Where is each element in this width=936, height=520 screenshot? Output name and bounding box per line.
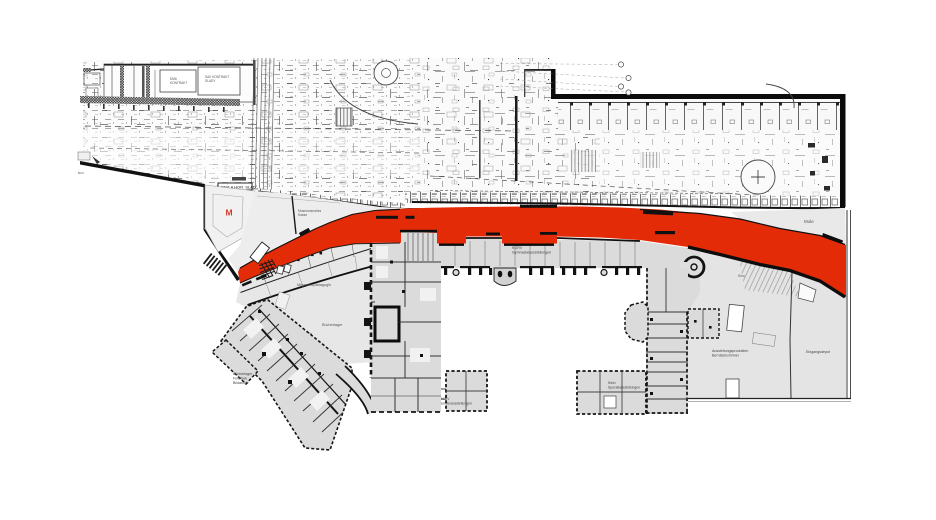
svg-text:Bücherlager: Bücherlager bbox=[233, 372, 253, 376]
svg-text:Gymnasialausstellungen: Gymnasialausstellungen bbox=[512, 251, 551, 255]
svg-text:KONTRAKT: KONTRAKT bbox=[170, 81, 187, 85]
svg-text:Ausstellungsprodukten: Ausstellungsprodukten bbox=[712, 349, 748, 353]
svg-text:Fotothek: Fotothek bbox=[233, 377, 247, 381]
svg-text:BVC: BVC bbox=[78, 171, 85, 175]
svg-text:Bücherlager: Bücherlager bbox=[322, 323, 343, 327]
svg-text:Kasse: Kasse bbox=[298, 213, 307, 217]
svg-text:M: M bbox=[225, 208, 232, 218]
svg-text:Museumspädagogik: Museumspädagogik bbox=[297, 283, 331, 287]
svg-text:Klein: Klein bbox=[608, 381, 616, 385]
svg-text:Kino: Kino bbox=[738, 274, 745, 278]
svg-text:Spezialausstellungen: Spezialausstellungen bbox=[608, 386, 640, 390]
svg-text:KGRV: KGRV bbox=[440, 397, 450, 401]
svg-text:Bernsteinzimmer: Bernsteinzimmer bbox=[712, 354, 740, 358]
svg-text:Mole: Mole bbox=[804, 219, 814, 224]
svg-text:KGRV: KGRV bbox=[512, 246, 523, 250]
svg-text:SLADY: SLADY bbox=[205, 79, 216, 83]
svg-text:Eingangsdepot: Eingangsdepot bbox=[806, 350, 830, 354]
svg-text:Bildarchiv: Bildarchiv bbox=[233, 381, 249, 385]
svg-text:Sonderausstellungen: Sonderausstellungen bbox=[440, 402, 472, 406]
